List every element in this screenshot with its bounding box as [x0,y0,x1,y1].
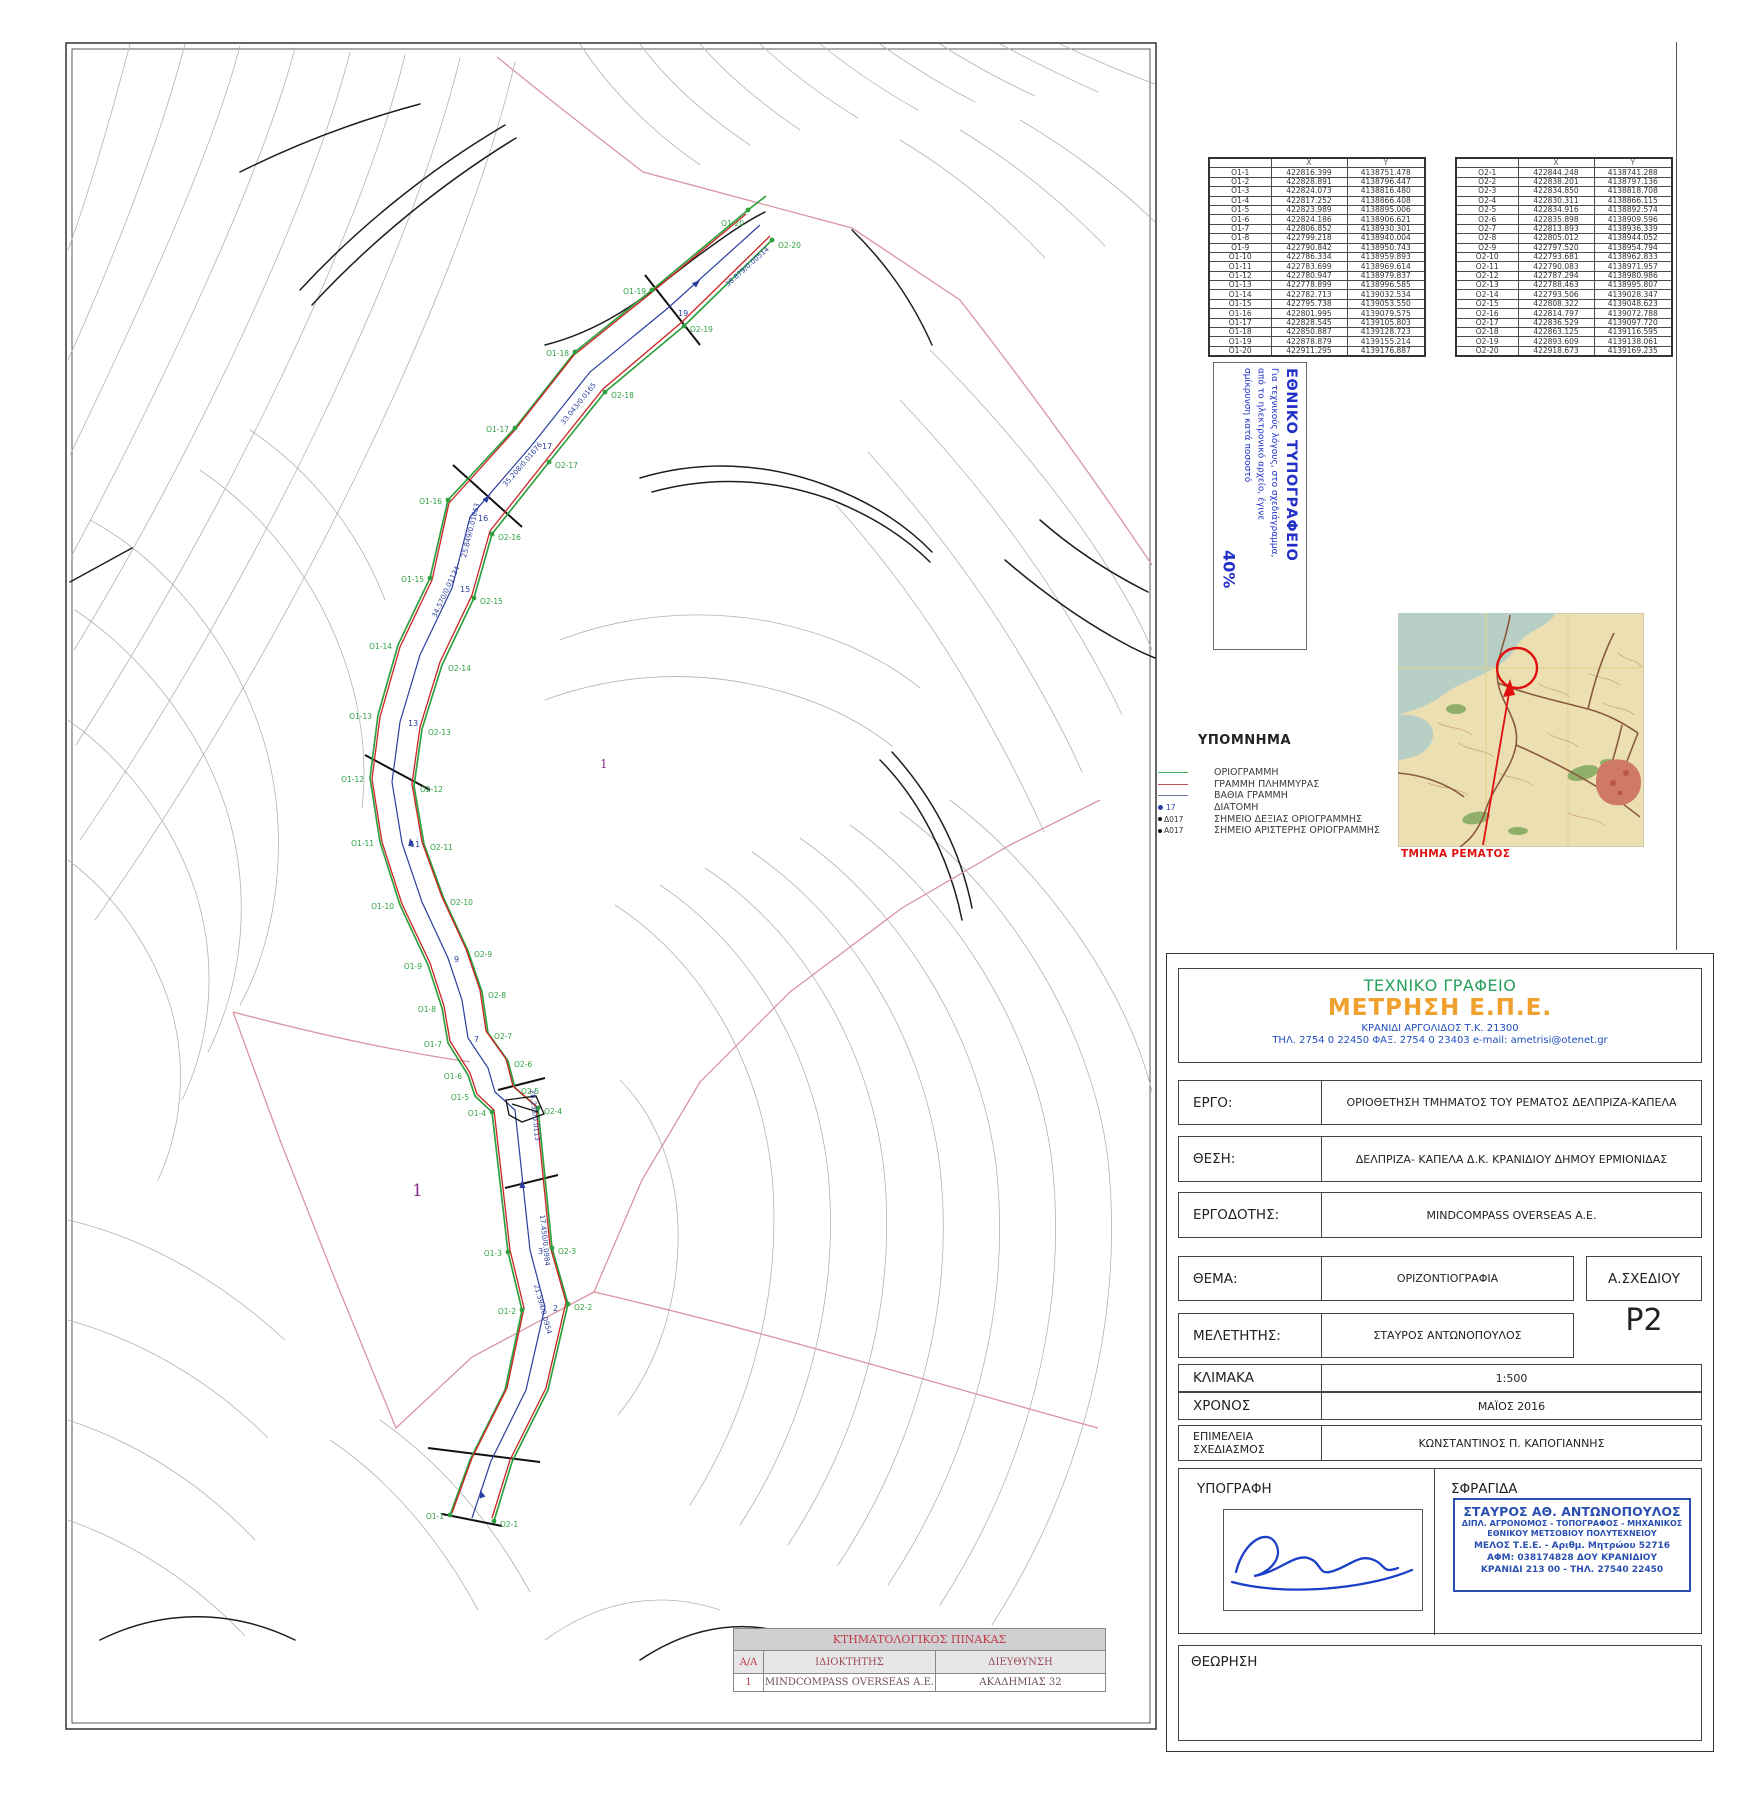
table-row: O1-2422828.8914138796.447 [1209,177,1425,186]
drawing-number-label-box: Α.ΣΧΕΔΙΟΥ [1586,1256,1702,1301]
table-row: O2-18422863.1254139116.595 [1456,328,1672,337]
table-row: O1-18422850.8874139128.723 [1209,328,1425,337]
location-row: ΘΕΣΗ: ΔΕΛΠΡΙΖΑ- ΚΑΠΕΛΑ Δ.Κ. ΚΡΑΝΙΔΙΟΥ ΔΗ… [1178,1136,1702,1182]
svg-text:O1-11: O1-11 [351,839,374,848]
table-row: O2-6422835.8984138909.596 [1456,215,1672,224]
table-row: O2-9422797.5204138954.794 [1456,243,1672,252]
svg-text:O1-17: O1-17 [486,425,509,434]
table-header-row: XY [1209,158,1425,168]
company-header: ΤΕΧΝΙΚΟ ΓΡΑΦΕΙΟ ΜΕΤΡΗΣΗ Ε.Π.Ε. ΚΡΑΝΙΔΙ Α… [1178,968,1702,1063]
table-row: O2-8422805.0124138944.052 [1456,234,1672,243]
table-row: O2-5422834.9164138892.574 [1456,205,1672,214]
svg-text:O1-15: O1-15 [401,575,424,584]
scale-row: ΚΛΙΜΑΚΑ 1:500 [1178,1364,1702,1392]
table-row: O2-10422793.6814138962.833 [1456,252,1672,261]
svg-text:O2-11: O2-11 [430,843,453,852]
svg-text:O2-1: O2-1 [500,1520,518,1529]
svg-text:O2-12: O2-12 [420,785,443,794]
location-map [1398,613,1644,847]
surveyor-row: ΜΕΛΕΤΗΤΗΣ: ΣΤΑΥΡΟΣ ΑΝΤΩΝΟΠΟΥΛΟΣ [1178,1313,1574,1358]
column-header [1209,158,1271,168]
subject-row: ΘΕΜΑ: ΟΡΙΖΟΝΤΙΟΓΡΑΦΙΑ [1178,1256,1574,1301]
cadastral-data-row: 1 MINDCOMPASS OVERSEAS A.E. ΑΚΑΔΗΜΙΑΣ 32 [734,1674,1106,1692]
svg-text:15: 15 [460,585,470,594]
table-row: O1-10422786.3344138959.893 [1209,252,1425,261]
svg-text:O2-14: O2-14 [448,664,471,673]
project-row: ΕΡΓΟ: ΟΡΙΟΘΕΤΗΣΗ ΤΜΗΜΑΤΟΣ ΤΟΥ ΡΕΜΑΤΟΣ ΔΕ… [1178,1080,1702,1125]
table-row: O2-3422834.8504138818.708 [1456,187,1672,196]
svg-text:O2-9: O2-9 [474,950,492,959]
blue-line-swatch [1158,795,1188,796]
drawing-number: P2 [1586,1303,1702,1338]
svg-text:O1-10: O1-10 [371,902,394,911]
section-dot-swatch: 17 [1158,803,1188,812]
reduction-percentage: 40% [1217,368,1239,644]
table-row: O2-1422844.2484138741.288 [1456,168,1672,177]
table-row: O2-19422893.6094139138.061 [1456,337,1672,346]
table-row: O1-9422790.8424138950.743 [1209,243,1425,252]
svg-text:O2-19: O2-19 [690,325,713,334]
coordinate-table-o1: XYO1-1422816.3994138751.478O1-2422828.89… [1208,157,1426,357]
svg-text:O2-6: O2-6 [514,1060,532,1069]
parcel-number-label: 1 [412,1181,423,1201]
svg-text:O1-5: O1-5 [451,1093,469,1102]
column-header: Y [1347,158,1425,168]
table-row: O1-3422824.0734138816.480 [1209,187,1425,196]
svg-text:13: 13 [408,719,418,728]
office-type: ΤΕΧΝΙΚΟ ΓΡΑΦΕΙΟ [1179,976,1701,995]
svg-text:O2-17: O2-17 [555,461,578,470]
table-row: O2-12422787.2944138980.986 [1456,271,1672,280]
table-row: O2-17422836.5294139097.720 [1456,318,1672,327]
svg-text:O1-7: O1-7 [424,1040,442,1049]
svg-text:O2-4: O2-4 [544,1107,562,1116]
red-line-swatch [1158,784,1188,785]
svg-text:O1-6: O1-6 [444,1072,462,1081]
signature-label: ΥΠΟΓΡΑΦΗ [1197,1481,1272,1497]
approval-section: ΘΕΩΡΗΣΗ [1178,1645,1702,1741]
urban-area [1596,759,1641,805]
column-header: Y [1594,158,1672,168]
svg-text:O2-13: O2-13 [428,728,451,737]
svg-text:O2-20: O2-20 [778,241,801,250]
drafting-row: ΕΠΙΜΕΛΕΙΑ ΣΧΕΔΙΑΣΜΟΣ ΚΩΝΣΤΑΝΤΙΝΟΣ Π. ΚΑΠ… [1178,1425,1702,1461]
svg-text:O1-3: O1-3 [484,1249,502,1258]
svg-text:O1-4: O1-4 [468,1109,486,1118]
table-row: O1-1422816.3994138751.478 [1209,168,1425,177]
table-row: O1-7422806.8524138930.301 [1209,224,1425,233]
signature-box [1223,1509,1423,1611]
table-row: O2-11422790.0834138971.957 [1456,262,1672,271]
svg-text:11: 11 [410,840,420,849]
green-line-swatch [1158,772,1188,773]
table-row: O2-16422814.7974139072.788 [1456,309,1672,318]
svg-text:O2-8: O2-8 [488,991,506,1000]
company-address: ΚΡΑΝΙΔΙ ΑΡΓΟΛΙΔΟΣ Τ.Κ. 21300 [1179,1023,1701,1034]
table-header-row: XY [1456,158,1672,168]
panel-separator [1676,42,1677,950]
table-row: O1-4422817.2524138866.408 [1209,196,1425,205]
svg-text:16: 16 [478,514,488,523]
svg-text:O1-18: O1-18 [546,349,569,358]
svg-text:O2-15: O2-15 [480,597,503,606]
left-point-swatch: A017 [1158,826,1188,835]
table-row: O1-6422824.1864138906.621 [1209,215,1425,224]
svg-text:O2-3: O2-3 [558,1247,576,1256]
table-row: O1-16422801.9954139079.575 [1209,309,1425,318]
table-row: O2-13422788.4634138995.807 [1456,281,1672,290]
printing-office-stamp-title: ΕΘΝΙΚΟ ΤΥΠΟΓΡΑΦΕΙΟ [1280,368,1301,644]
table-row: O1-8422799.2184138940.004 [1209,234,1425,243]
site-caption: ΤΜΗΜΑ ΡΕΜΑΤΟΣ [1401,848,1510,860]
column-header: X [1271,158,1347,168]
parcel-number-label: 1 [600,757,608,771]
svg-text:O1-2: O1-2 [498,1307,516,1316]
table-row: O1-19422878.8794139155.214 [1209,337,1425,346]
table-row: O2-7422813.8934138936.339 [1456,224,1672,233]
svg-text:O2-7: O2-7 [494,1032,512,1041]
svg-text:O2-10: O2-10 [450,898,473,907]
coordinate-table-o2: XYO2-1422844.2484138741.288O2-2422838.20… [1455,157,1673,357]
date-row: ΧΡΟΝΟΣ ΜΑΪΟΣ 2016 [1178,1392,1702,1420]
svg-text:19: 19 [678,309,688,318]
printing-office-stamp: ΕΘΝΙΚΟ ΤΥΠΟΓΡΑΦΕΙΟ Για τεχνικούς λόγους,… [1213,362,1307,650]
table-row: O2-2422838.2014138797.136 [1456,177,1672,186]
svg-text:7: 7 [474,1035,479,1044]
cadastral-table: ΚΤΗΜΑΤΟΛΟΓΙΚΟΣ ΠΙΝΑΚΑΣ Α/Α ΙΔΙΟΚΤΗΤΗΣ ΔΙ… [733,1628,1106,1692]
table-row: O1-13422778.8994138996.585 [1209,281,1425,290]
svg-text:O1-1: O1-1 [426,1512,444,1521]
svg-text:O1-8: O1-8 [418,1005,436,1014]
table-row: O1-14422782.7134139032.534 [1209,290,1425,299]
svg-text:2: 2 [553,1304,558,1313]
svg-text:O1-13: O1-13 [349,712,372,721]
column-header: X [1518,158,1594,168]
signature-scribble [1224,1510,1422,1610]
table-row: O1-17422828.5454139105.803 [1209,318,1425,327]
table-row: O2-4422830.3114138866.115 [1456,196,1672,205]
table-row: O1-5422823.9894138895.006 [1209,205,1425,214]
approval-label: ΘΕΩΡΗΣΗ [1191,1654,1257,1670]
svg-text:O2-16: O2-16 [498,533,521,542]
cadastral-title: ΚΤΗΜΑΤΟΛΟΓΙΚΟΣ ΠΙΝΑΚΑΣ [734,1629,1106,1651]
table-row: O2-20422918.6734139169.235 [1456,346,1672,356]
svg-text:O1-14: O1-14 [369,642,392,651]
svg-text:O1-9: O1-9 [404,962,422,971]
svg-text:O1-20: O1-20 [721,219,744,228]
table-row: O2-15422808.3224139048.623 [1456,299,1672,308]
company-name: ΜΕΤΡΗΣΗ Ε.Π.Ε. [1179,995,1701,1021]
company-contact: ΤΗΛ. 2754 0 22450 ΦΑΞ. 2754 0 23403 e-ma… [1179,1035,1701,1046]
table-row: O2-14422793.5064139028.347 [1456,290,1672,299]
table-row: O1-20422911.2954139176.887 [1209,346,1425,356]
svg-text:O1-16: O1-16 [419,497,442,506]
svg-text:O1-12: O1-12 [341,775,364,784]
plan-frame-outer [66,43,1156,1729]
table-row: O1-15422795.7384139053.550 [1209,299,1425,308]
svg-text:O1-19: O1-19 [623,287,646,296]
svg-text:9: 9 [454,955,459,964]
stamp-label: ΣΦΡΑΓΙΔΑ [1451,1481,1518,1497]
cadastral-header-row: Α/Α ΙΔΙΟΚΤΗΤΗΣ ΔΙΕΥΘΥΝΣΗ [734,1651,1106,1674]
right-point-swatch: Δ017 [1158,815,1188,824]
svg-text:O2-2: O2-2 [574,1303,592,1312]
column-header [1456,158,1518,168]
table-row: O1-11422783.6994138969.614 [1209,262,1425,271]
table-row: O1-12422780.9474138979.837 [1209,271,1425,280]
engineer-stamp: ΣΤΑΥΡΟΣ ΑΘ. ΑΝΤΩΝΟΠΟΥΛΟΣ ΔΙΠΛ. ΑΓΡΟΝΟΜΟΣ… [1453,1498,1691,1592]
survey-drawing-sheet: O1-20 O1-19 O1-18 O1-17 O1-16 O1-15 O1-1… [0,0,1761,1811]
svg-text:O2-18: O2-18 [611,391,634,400]
client-row: ΕΡΓΟΔΟΤΗΣ: MINDCOMPASS OVERSEAS A.E. [1178,1192,1702,1238]
